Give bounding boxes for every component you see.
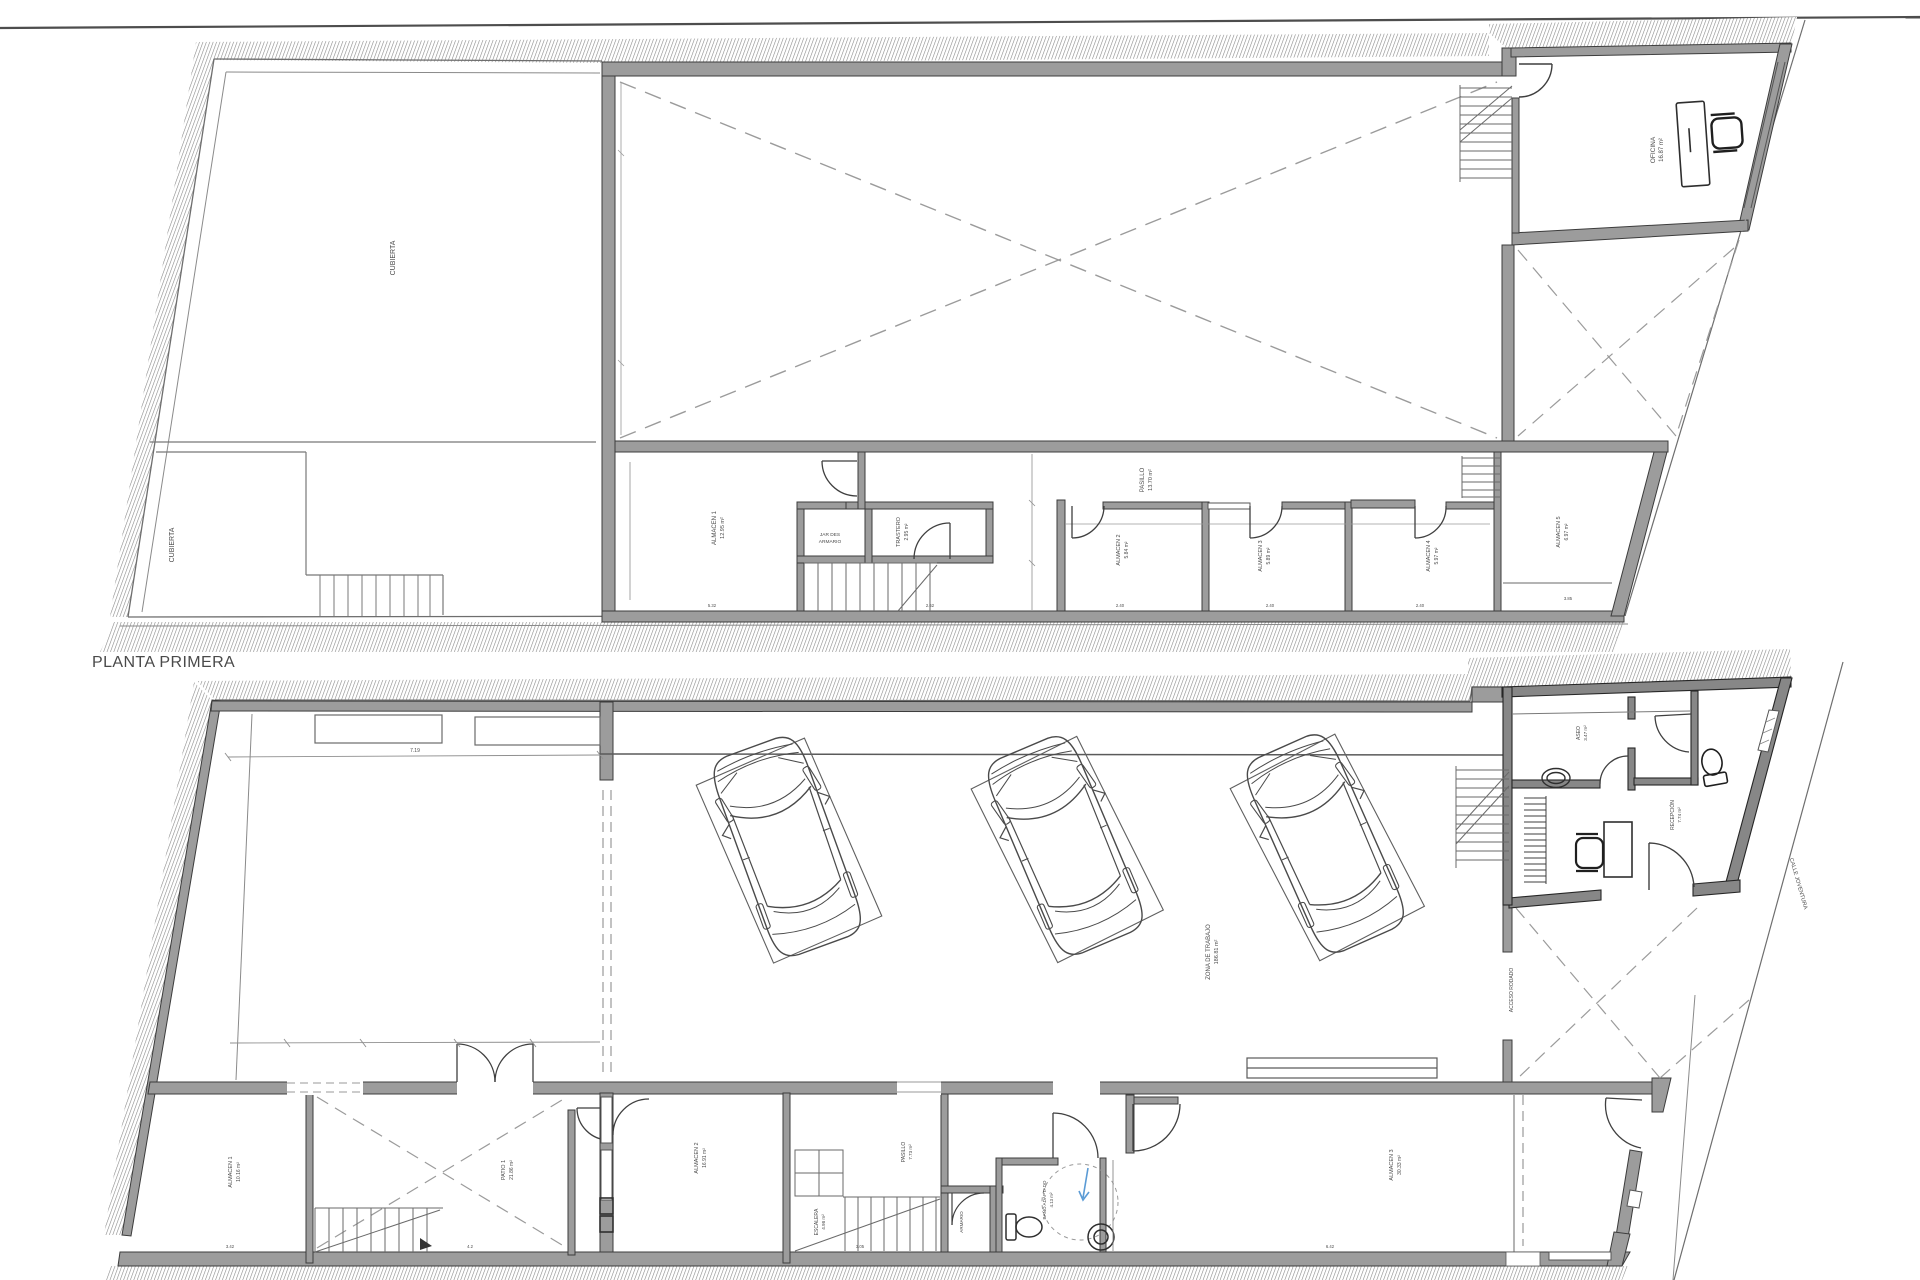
svg-text:186.81 m²: 186.81 m² (1214, 939, 1220, 964)
svg-text:21.86 m²: 21.86 m² (509, 1160, 515, 1180)
svg-text:ESCALERA: ESCALERA (814, 1208, 820, 1235)
svg-text:ZONA DE TRABAJO: ZONA DE TRABAJO (1206, 924, 1212, 980)
svg-text:2.40: 2.40 (1266, 603, 1275, 608)
svg-text:ACCESO RODADO: ACCESO RODADO (1509, 968, 1515, 1013)
svg-text:3.47 m²: 3.47 m² (1583, 725, 1588, 741)
svg-text:CUBIERTA: CUBIERTA (169, 527, 176, 562)
svg-text:2.40: 2.40 (1416, 603, 1425, 608)
svg-text:ALMACEN 1: ALMACEN 1 (712, 510, 718, 545)
svg-text:CUBIERTA: CUBIERTA (390, 240, 397, 275)
svg-text:7.19: 7.19 (410, 748, 420, 754)
svg-text:BAÑO ADAPTADO: BAÑO ADAPTADO (1041, 1180, 1047, 1219)
svg-text:12.95 m²: 12.95 m² (720, 517, 726, 539)
svg-text:PLANTA PRIMERA: PLANTA PRIMERA (92, 654, 235, 671)
svg-text:JAR DES: JAR DES (820, 532, 840, 538)
svg-text:4.2: 4.2 (467, 1244, 473, 1249)
svg-text:2.62: 2.62 (926, 603, 935, 608)
svg-text:6.42: 6.42 (1326, 1244, 1335, 1249)
svg-text:ALMACEN 4: ALMACEN 4 (1426, 540, 1432, 571)
svg-text:4.13 m²: 4.13 m² (1049, 1192, 1054, 1207)
svg-text:5.32: 5.32 (708, 603, 717, 608)
svg-text:ARMARIO: ARMARIO (959, 1211, 964, 1233)
svg-text:ALMACEN 3: ALMACEN 3 (1258, 540, 1264, 571)
svg-text:ALMACEN 2: ALMACEN 2 (694, 1142, 700, 1173)
svg-text:ALMACEN 1: ALMACEN 1 (228, 1156, 234, 1187)
svg-text:4.98 m²: 4.98 m² (821, 1214, 826, 1230)
svg-text:RECEPCIÓN: RECEPCIÓN (1669, 800, 1676, 830)
svg-text:16.91 m²: 16.91 m² (702, 1148, 708, 1168)
svg-text:2.40: 2.40 (1116, 603, 1125, 608)
svg-text:ALMACEN 5: ALMACEN 5 (1556, 516, 1562, 547)
svg-text:PATIO 1: PATIO 1 (501, 1160, 507, 1180)
svg-text:PASILLO: PASILLO (901, 1142, 907, 1163)
svg-text:TRASTERO: TRASTERO (896, 516, 902, 547)
svg-text:6.97 m²: 6.97 m² (1564, 523, 1570, 540)
svg-text:5.89 m²: 5.89 m² (1266, 547, 1272, 564)
svg-text:16.87 m²: 16.87 m² (1659, 138, 1665, 162)
svg-text:CALLE JOVENTURA: CALLE JOVENTURA (1788, 857, 1808, 910)
svg-text:5.84 m²: 5.84 m² (1124, 541, 1130, 558)
svg-text:7.73 m²: 7.73 m² (908, 1144, 913, 1160)
svg-text:ARMARIO: ARMARIO (819, 539, 842, 545)
svg-text:ASEO: ASEO (1576, 726, 1582, 740)
svg-text:ALMACEN 2: ALMACEN 2 (1116, 534, 1122, 565)
svg-text:3.85: 3.85 (1564, 596, 1573, 601)
svg-text:2.95 m²: 2.95 m² (904, 523, 910, 540)
svg-text:3.05: 3.05 (856, 1244, 865, 1249)
svg-text:ALMACEN 3: ALMACEN 3 (1389, 1149, 1395, 1180)
svg-text:13.70 m²: 13.70 m² (1148, 469, 1154, 491)
svg-text:3.42: 3.42 (226, 1244, 235, 1249)
svg-text:10.16 m²: 10.16 m² (236, 1162, 242, 1182)
svg-text:5.97 m²: 5.97 m² (1434, 547, 1440, 564)
svg-text:30.33 m²: 30.33 m² (1397, 1155, 1403, 1175)
svg-text:PASILLO: PASILLO (1140, 467, 1146, 492)
svg-text:OFICINA: OFICINA (1650, 136, 1657, 163)
svg-text:7.74 m²: 7.74 m² (1677, 807, 1682, 823)
